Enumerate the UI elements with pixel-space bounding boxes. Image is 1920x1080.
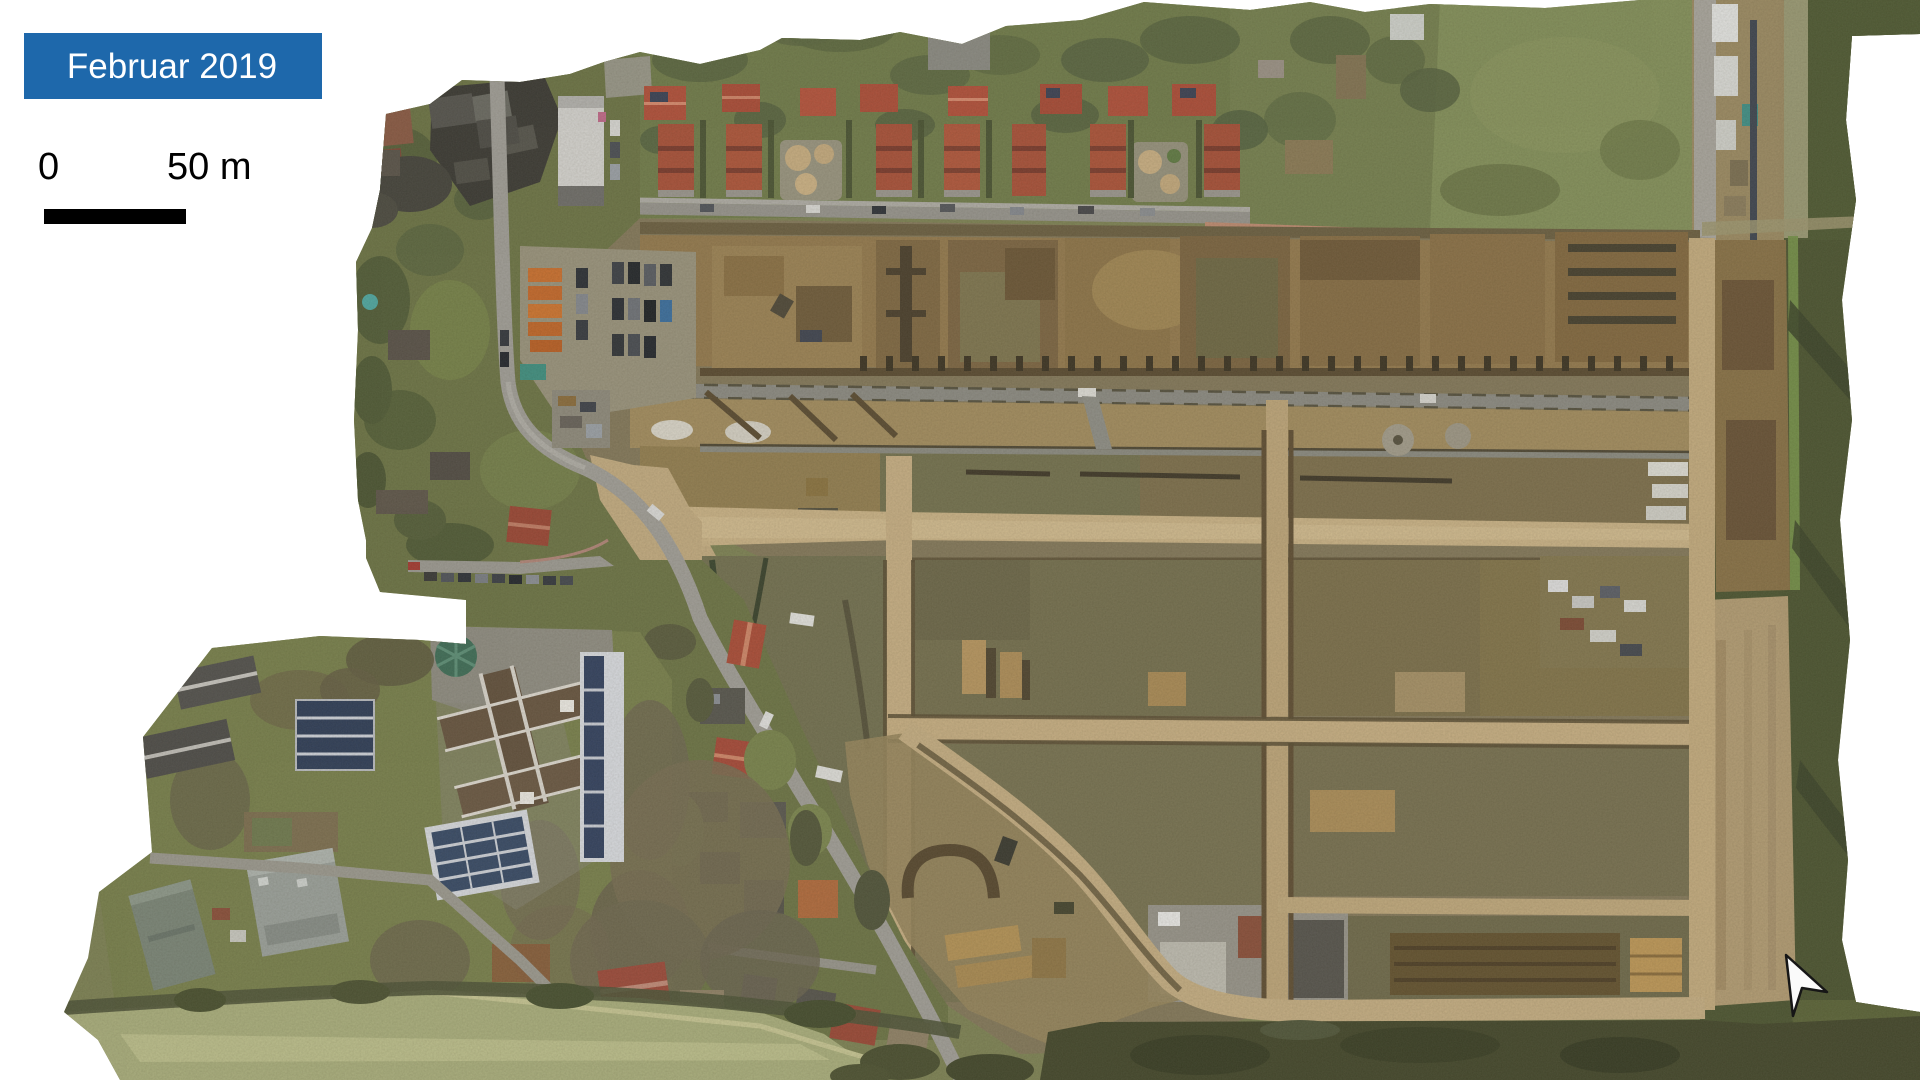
svg-text:50 m: 50 m [167, 146, 251, 188]
svg-text:Februar 2019: Februar 2019 [67, 47, 277, 86]
svg-text:0: 0 [38, 146, 59, 188]
